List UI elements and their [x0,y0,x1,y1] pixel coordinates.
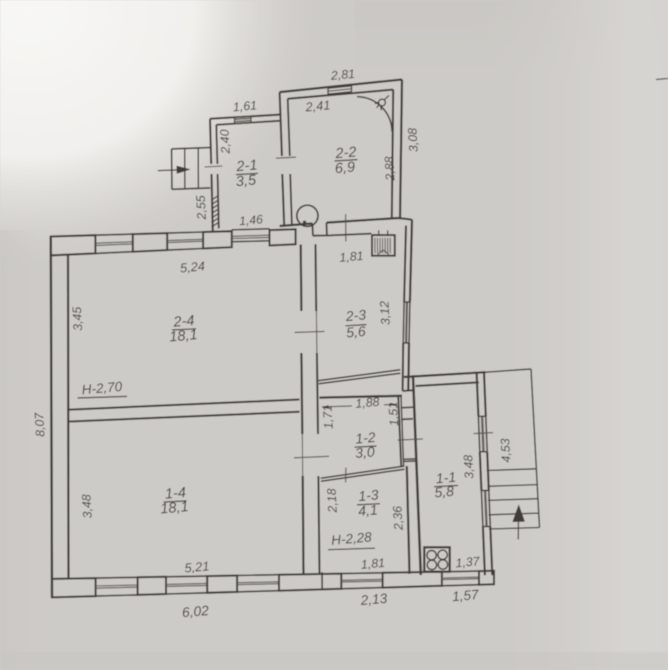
svg-text:18,1: 18,1 [160,499,190,517]
svg-text:1,37: 1,37 [455,554,481,570]
svg-text:1,71: 1,71 [320,405,335,430]
svg-text:3,48: 3,48 [79,494,94,519]
svg-text:3,48: 3,48 [461,454,476,479]
svg-text:2,81: 2,81 [329,67,355,83]
svg-text:2,13: 2,13 [359,591,388,608]
svg-text:3,12: 3,12 [377,301,392,326]
svg-text:4,53: 4,53 [498,438,513,463]
svg-text:1,88: 1,88 [355,395,380,411]
svg-text:3,0: 3,0 [354,443,375,461]
svg-text:6,9: 6,9 [334,159,355,177]
svg-text:3,08: 3,08 [405,128,420,153]
svg-text:5,24: 5,24 [179,258,205,275]
svg-text:5,6: 5,6 [345,323,366,341]
svg-text:6,02: 6,02 [181,603,209,620]
svg-text:1,51: 1,51 [386,402,401,427]
svg-text:1,81: 1,81 [360,556,385,572]
svg-text:2,55: 2,55 [194,195,209,221]
svg-text:2,36: 2,36 [390,506,405,532]
svg-text:5,8: 5,8 [434,483,455,501]
svg-text:3,5: 3,5 [235,172,257,190]
svg-text:3,45: 3,45 [70,306,85,331]
svg-text:2-3: 2-3 [344,306,367,324]
svg-text:4,1: 4,1 [357,501,378,519]
svg-text:1,46: 1,46 [238,212,263,228]
svg-text:2,41: 2,41 [304,97,331,114]
svg-text:1,57: 1,57 [451,587,479,604]
svg-text:18,1: 18,1 [169,327,199,345]
svg-text:2,40: 2,40 [218,129,233,155]
svg-text:8,07: 8,07 [32,411,47,437]
svg-text:1,81: 1,81 [339,249,364,265]
svg-text:5,21: 5,21 [184,558,210,575]
svg-text:2,18: 2,18 [325,488,340,514]
svg-text:2,88: 2,88 [382,156,397,182]
svg-text:1,61: 1,61 [232,98,257,114]
